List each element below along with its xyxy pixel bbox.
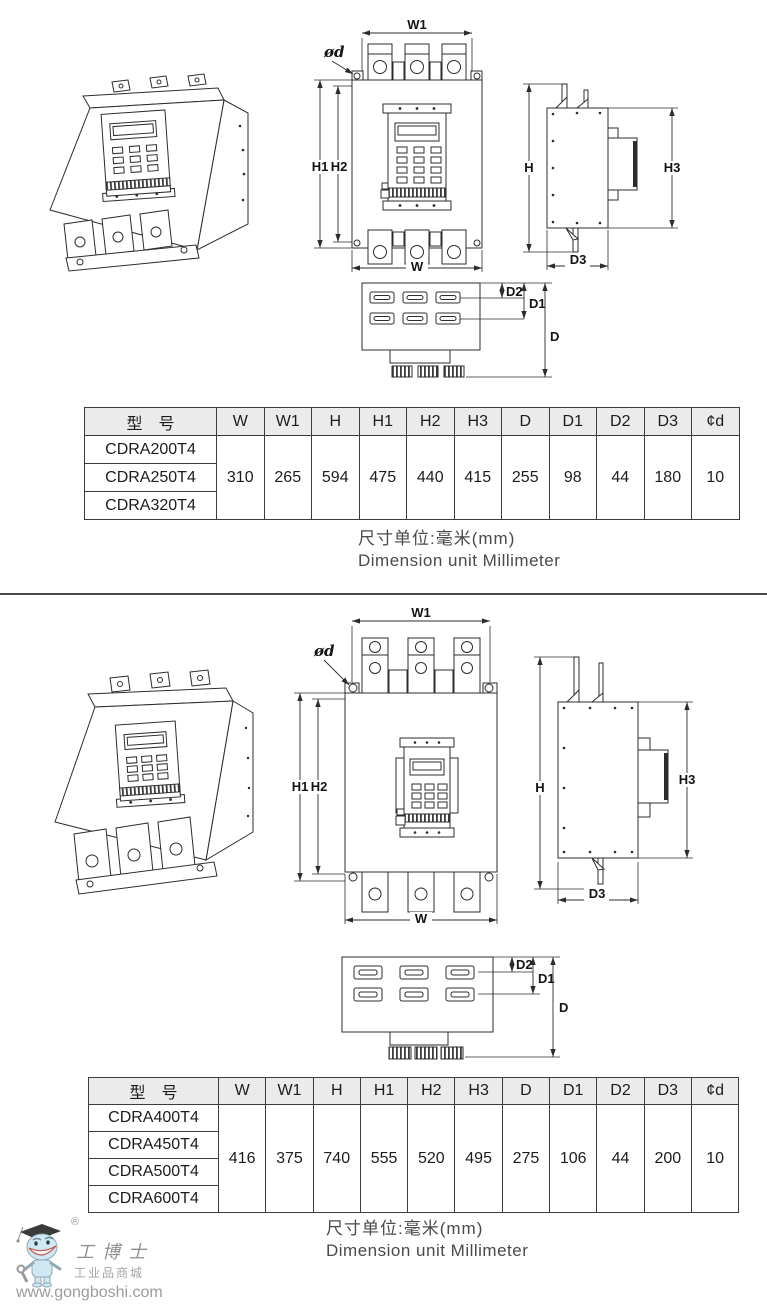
side-view: H H3 D3 — [530, 657, 699, 904]
dim-value: 106 — [550, 1105, 597, 1213]
side-view: H H3 D3 — [519, 84, 684, 270]
dim-label-d2: D2 — [516, 957, 533, 972]
col-header: D1 — [550, 1078, 597, 1105]
col-header: ¢d — [691, 1078, 738, 1105]
dim-value: 740 — [313, 1105, 360, 1213]
watermark-logo: ® 工博士 工业品商城 www.gongboshi.com — [14, 1216, 194, 1306]
dim-value: 10 — [691, 1105, 738, 1213]
unit-note: 尺寸单位:毫米(mm) Dimension unit Millimeter — [326, 1218, 528, 1262]
dim-value: 255 — [502, 436, 550, 520]
spec-sheet-page: W1 ød H1 H2 — [0, 0, 767, 1310]
model-name: CDRA200T4 — [85, 436, 217, 464]
unit-note-cn: 尺寸单位:毫米(mm) — [358, 528, 560, 550]
dim-label-h1: H1 — [312, 159, 329, 174]
col-header: D2 — [597, 1078, 644, 1105]
dim-label-d2: D2 — [506, 284, 523, 299]
dim-value: 200 — [644, 1105, 691, 1213]
dim-value: 310 — [217, 436, 265, 520]
dim-label-phi-d: ød — [313, 642, 335, 660]
dim-label-d: D — [550, 329, 559, 344]
bottom-view: D2 D1 D — [342, 957, 568, 1059]
dim-value: 275 — [502, 1105, 549, 1213]
dim-label-phi-d: ød — [323, 43, 345, 61]
dimension-drawing-small-frame: W1 ød H1 H2 — [0, 0, 767, 398]
dim-label-d3: D3 — [589, 886, 606, 901]
col-header: W1 — [264, 408, 312, 436]
header-row: 型 号 W W1 H H1 H2 H3 D D1 D2 D3 ¢d — [89, 1078, 739, 1105]
col-header: H3 — [454, 408, 502, 436]
col-header: W1 — [266, 1078, 313, 1105]
col-header: H2 — [408, 1078, 455, 1105]
dim-value: 180 — [644, 436, 692, 520]
unit-note-en: Dimension unit Millimeter — [358, 550, 560, 572]
front-view: W1 ød H1 H2 — [310, 17, 482, 274]
dimension-drawing-large-frame: W1 ød H1 H2 — [0, 598, 767, 1073]
col-header: H2 — [407, 408, 455, 436]
front-view: W1 ød H1 H2 — [290, 605, 497, 926]
col-header: H — [312, 408, 360, 436]
col-header: ¢d — [692, 408, 740, 436]
section-divider — [0, 593, 767, 595]
model-name: CDRA600T4 — [89, 1186, 219, 1213]
table-row: CDRA200T4 310 265 594 475 440 415 255 98… — [85, 436, 740, 464]
dim-label-d3: D3 — [570, 252, 587, 267]
registered-mark: ® — [71, 1216, 79, 1228]
dim-value: 495 — [455, 1105, 502, 1213]
dim-label-w1: W1 — [407, 17, 427, 32]
dim-label-h2: H2 — [331, 159, 348, 174]
dim-value: 555 — [360, 1105, 407, 1213]
dim-value: 44 — [597, 1105, 644, 1213]
col-header: H3 — [455, 1078, 502, 1105]
col-header: D2 — [597, 408, 645, 436]
header-row: 型 号 W W1 H H1 H2 H3 D D1 D2 D3 ¢d — [85, 408, 740, 436]
col-header: H1 — [359, 408, 407, 436]
dim-label-w: W — [415, 911, 428, 926]
unit-note-cn: 尺寸单位:毫米(mm) — [326, 1218, 528, 1240]
col-header: W — [219, 1078, 266, 1105]
col-header: H — [313, 1078, 360, 1105]
mascot-icon — [14, 1220, 70, 1288]
dim-label-d1: D1 — [529, 296, 546, 311]
col-header: D — [502, 408, 550, 436]
model-name: CDRA450T4 — [89, 1132, 219, 1159]
col-header: D3 — [644, 1078, 691, 1105]
dim-value: 10 — [692, 436, 740, 520]
brand-url: www.gongboshi.com — [16, 1284, 163, 1302]
dim-label-d1: D1 — [538, 971, 555, 986]
model-name: CDRA500T4 — [89, 1159, 219, 1186]
dim-value: 594 — [312, 436, 360, 520]
unit-note: 尺寸单位:毫米(mm) Dimension unit Millimeter — [358, 528, 560, 572]
dim-value: 416 — [219, 1105, 266, 1213]
dim-value: 98 — [549, 436, 597, 520]
col-header: D — [502, 1078, 549, 1105]
bottom-view: D2 D1 D — [362, 283, 559, 377]
brand-tagline: 工业品商城 — [74, 1264, 144, 1281]
col-header: W — [217, 408, 265, 436]
dim-value: 415 — [454, 436, 502, 520]
isometric-view — [55, 670, 253, 894]
model-name: CDRA250T4 — [85, 464, 217, 492]
dim-value: 265 — [264, 436, 312, 520]
dim-label-h1: H1 — [292, 779, 309, 794]
model-name: CDRA400T4 — [89, 1105, 219, 1132]
isometric-view — [50, 74, 248, 271]
dim-value: 375 — [266, 1105, 313, 1213]
col-header: D1 — [549, 408, 597, 436]
dim-value: 520 — [408, 1105, 455, 1213]
dim-label-h: H — [535, 780, 544, 795]
unit-note-en: Dimension unit Millimeter — [326, 1240, 528, 1262]
dimension-table-large: 型 号 W W1 H H1 H2 H3 D D1 D2 D3 ¢d CDRA40… — [88, 1077, 739, 1213]
dim-label-w: W — [411, 259, 424, 274]
dimension-table-small: 型 号 W W1 H H1 H2 H3 D D1 D2 D3 ¢d CDRA20… — [84, 407, 740, 520]
col-header: D3 — [644, 408, 692, 436]
dim-value: 44 — [597, 436, 645, 520]
dim-label-h2: H2 — [311, 779, 328, 794]
brand-name: 工博士 — [76, 1238, 154, 1264]
dim-label-h3: H3 — [679, 772, 696, 787]
table-row: CDRA400T4 416 375 740 555 520 495 275 10… — [89, 1105, 739, 1132]
dim-value: 475 — [359, 436, 407, 520]
model-name: CDRA320T4 — [85, 492, 217, 520]
dim-value: 440 — [407, 436, 455, 520]
dim-label-d: D — [559, 1000, 568, 1015]
dim-label-h3: H3 — [664, 160, 681, 175]
col-header: H1 — [360, 1078, 407, 1105]
col-header-model: 型 号 — [89, 1078, 219, 1105]
dim-label-h: H — [524, 160, 533, 175]
col-header-model: 型 号 — [85, 408, 217, 436]
dim-label-w1: W1 — [411, 605, 431, 620]
